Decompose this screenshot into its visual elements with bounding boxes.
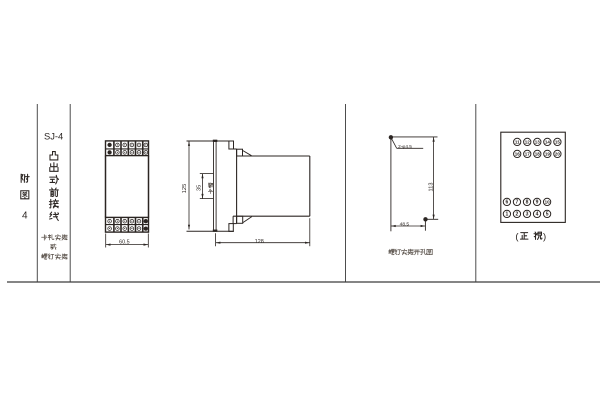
svg-text:8: 8 bbox=[526, 200, 529, 206]
svg-text:10: 10 bbox=[545, 200, 551, 205]
svg-text:2-φ4.5: 2-φ4.5 bbox=[398, 144, 412, 149]
svg-text:9: 9 bbox=[536, 200, 539, 206]
svg-text:13: 13 bbox=[535, 140, 541, 145]
svg-text:12: 12 bbox=[525, 140, 531, 145]
svg-text:20: 20 bbox=[555, 152, 561, 157]
svg-text:(: ( bbox=[515, 231, 519, 242]
svg-text:11: 11 bbox=[515, 140, 520, 145]
svg-text:15: 15 bbox=[555, 140, 561, 145]
svg-text:): ) bbox=[543, 231, 546, 242]
svg-text:1: 1 bbox=[506, 212, 509, 218]
svg-text:4: 4 bbox=[536, 212, 539, 218]
svg-text:7: 7 bbox=[516, 200, 519, 206]
svg-text:16: 16 bbox=[515, 152, 521, 157]
svg-text:113: 113 bbox=[428, 182, 434, 191]
svg-text:128: 128 bbox=[255, 239, 264, 245]
svg-text:60.5: 60.5 bbox=[119, 240, 130, 246]
svg-text:19: 19 bbox=[545, 152, 551, 157]
svg-text:14: 14 bbox=[545, 140, 551, 145]
svg-text:4: 4 bbox=[22, 211, 28, 222]
svg-text:5: 5 bbox=[546, 212, 549, 218]
svg-text:35: 35 bbox=[196, 185, 202, 191]
svg-text:18: 18 bbox=[535, 152, 541, 157]
svg-text:2: 2 bbox=[516, 212, 519, 218]
svg-text:SJ-4: SJ-4 bbox=[44, 130, 63, 141]
svg-text:6: 6 bbox=[506, 200, 509, 206]
svg-text:17: 17 bbox=[525, 152, 531, 157]
svg-text:125: 125 bbox=[182, 184, 188, 194]
svg-text:3: 3 bbox=[526, 212, 529, 218]
svg-text:48.5: 48.5 bbox=[400, 221, 410, 227]
